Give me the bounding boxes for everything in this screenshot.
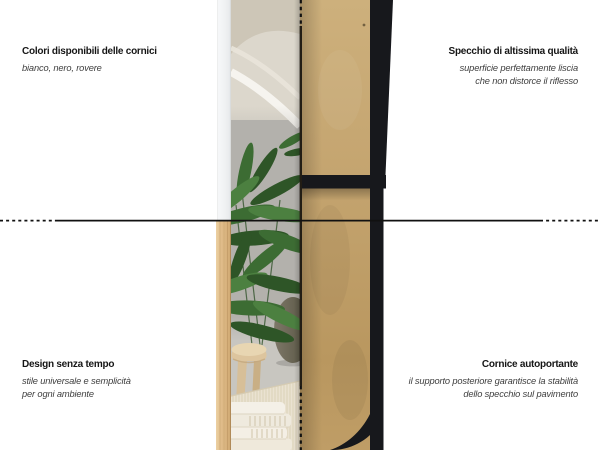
annotation-title: Cornice autoportante (409, 359, 578, 371)
annotation-subtitle-line: superficie perfettamente liscia (449, 62, 578, 75)
frame-upright-upper (370, 0, 393, 175)
frame-color-white (217, 0, 231, 221)
mirror-product-infographic: Colori disponibili delle cornici bianco,… (0, 0, 600, 450)
mdf-back-panel (300, 0, 370, 450)
annotation-subtitle-line: bianco, nero, rovere (22, 62, 157, 75)
annotation-timeless-design: Design senza tempo stile universale e se… (22, 359, 131, 401)
annotation-subtitle-line: che non distorce il riflesso (449, 75, 578, 88)
annotation-frame-colors: Colori disponibili delle cornici bianco,… (22, 46, 157, 75)
annotation-subtitle-line: per ogni ambiente (22, 388, 131, 401)
folded-textiles (228, 402, 292, 450)
annotation-freestanding-frame: Cornice autoportante il supporto posteri… (409, 359, 578, 401)
mirror-back-view (300, 0, 393, 450)
frame-color-oak (216, 221, 231, 450)
frame-upright-lower (370, 189, 384, 450)
annotation-title: Design senza tempo (22, 359, 131, 371)
annotation-subtitle-line: stile universale e semplicità (22, 375, 131, 388)
annotation-title: Colori disponibili delle cornici (22, 46, 157, 58)
annotation-subtitle-line: dello specchio sul pavimento (409, 388, 578, 401)
annotation-mirror-quality: Specchio di altissima qualità superficie… (449, 46, 578, 88)
annotation-title: Specchio di altissima qualità (449, 46, 578, 58)
frame-cross-bar (300, 175, 386, 189)
annotation-subtitle-line: il supporto posteriore garantisce la sta… (409, 375, 578, 388)
